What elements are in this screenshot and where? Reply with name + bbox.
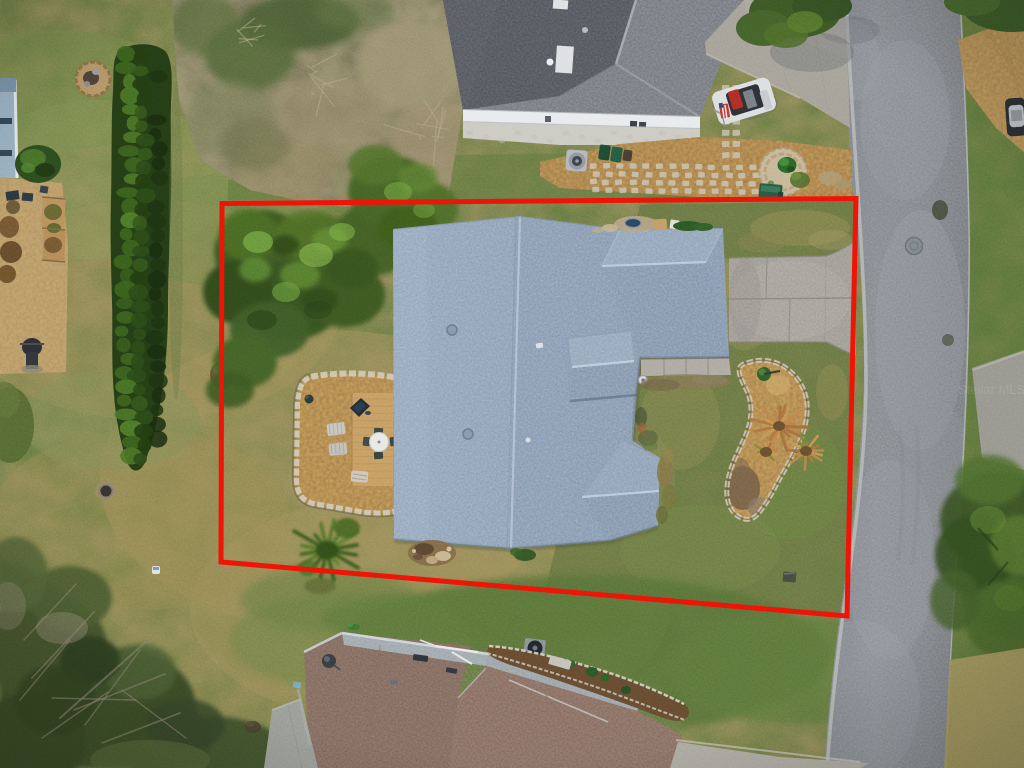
svg-text:Stellar MLS: Stellar MLS <box>958 382 1024 397</box>
